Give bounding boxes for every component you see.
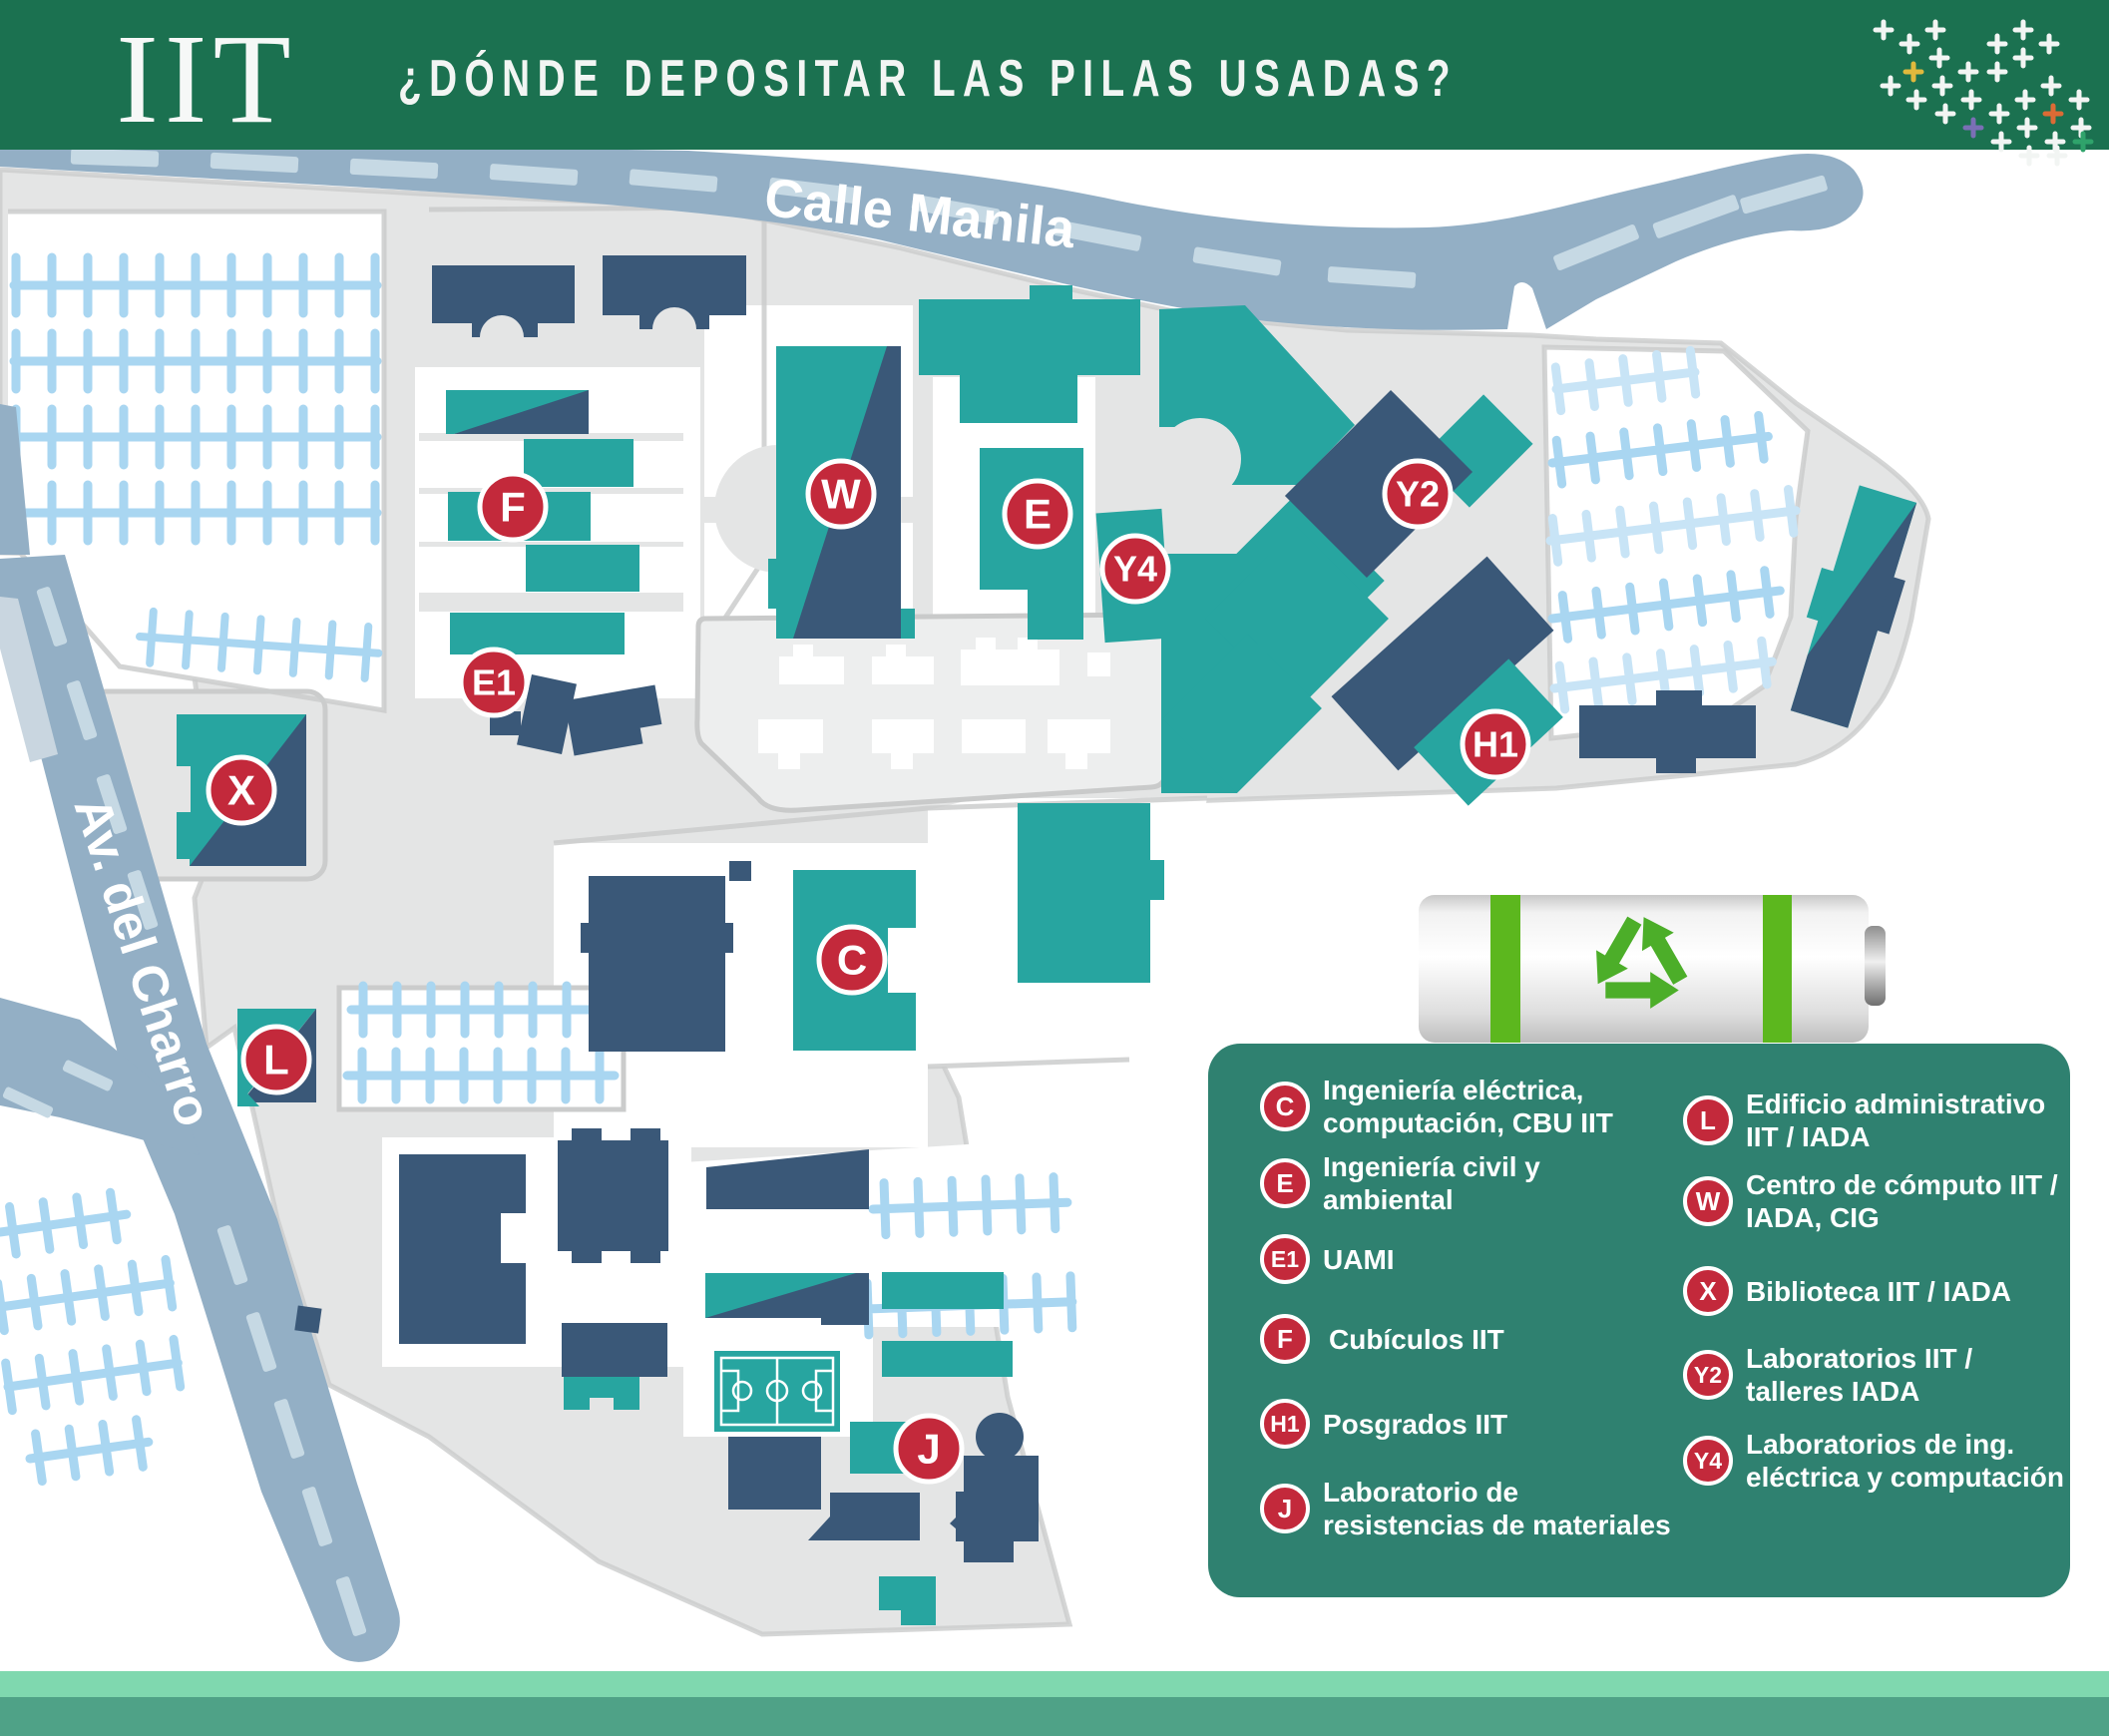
svg-text:Y2: Y2 [1396,474,1440,515]
svg-text:X: X [227,767,255,814]
svg-text:L: L [263,1037,289,1084]
svg-text:H1: H1 [1270,1411,1300,1437]
svg-text:W: W [821,471,861,518]
svg-text:IIT: IIT [116,8,296,150]
svg-text:¿DÓNDE DEPOSITAR LAS PILAS USA: ¿DÓNDE DEPOSITAR LAS PILAS USADAS? [398,50,1458,108]
svg-text:E: E [1276,1168,1293,1198]
svg-text:X: X [1699,1276,1717,1306]
svg-text:J: J [917,1426,940,1473]
svg-text:Biblioteca IIT / IADA: Biblioteca IIT / IADA [1746,1276,2011,1307]
svg-text:Y2: Y2 [1694,1362,1722,1388]
svg-text:W: W [1696,1186,1721,1216]
svg-text:UAMI: UAMI [1323,1244,1395,1275]
svg-text:Posgrados IIT: Posgrados IIT [1323,1409,1507,1440]
svg-text:C: C [837,937,867,984]
svg-text:E1: E1 [1271,1246,1299,1272]
svg-text:H1: H1 [1473,724,1518,765]
svg-text:E1: E1 [472,662,516,703]
svg-text:Cubículos IIT: Cubículos IIT [1329,1324,1504,1355]
svg-text:Y4: Y4 [1694,1448,1722,1474]
svg-text:F: F [500,484,526,531]
svg-text:C: C [1276,1091,1295,1121]
svg-text:E: E [1024,491,1052,538]
svg-text:L: L [1700,1105,1716,1135]
svg-text:J: J [1278,1494,1292,1523]
svg-text:F: F [1277,1324,1293,1354]
svg-text:Y4: Y4 [1113,549,1157,590]
